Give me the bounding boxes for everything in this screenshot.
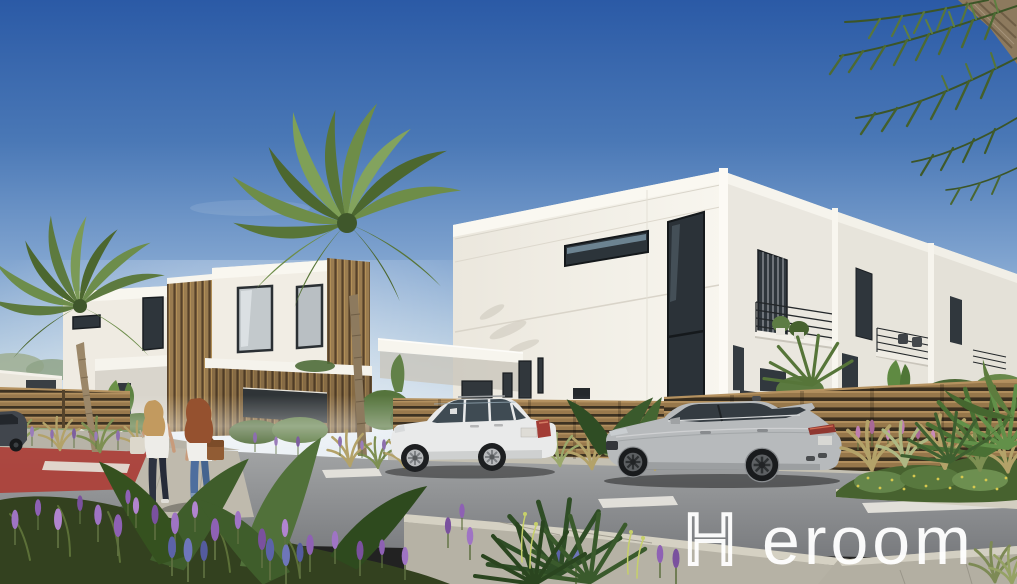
license-plate xyxy=(818,436,832,445)
scene-canvas xyxy=(0,0,1017,584)
wall-vine xyxy=(295,360,335,372)
license-plate xyxy=(521,428,537,437)
tote-bag xyxy=(130,437,145,454)
tall-window xyxy=(668,212,704,408)
rendered-photo: H eroom xyxy=(0,0,1017,584)
